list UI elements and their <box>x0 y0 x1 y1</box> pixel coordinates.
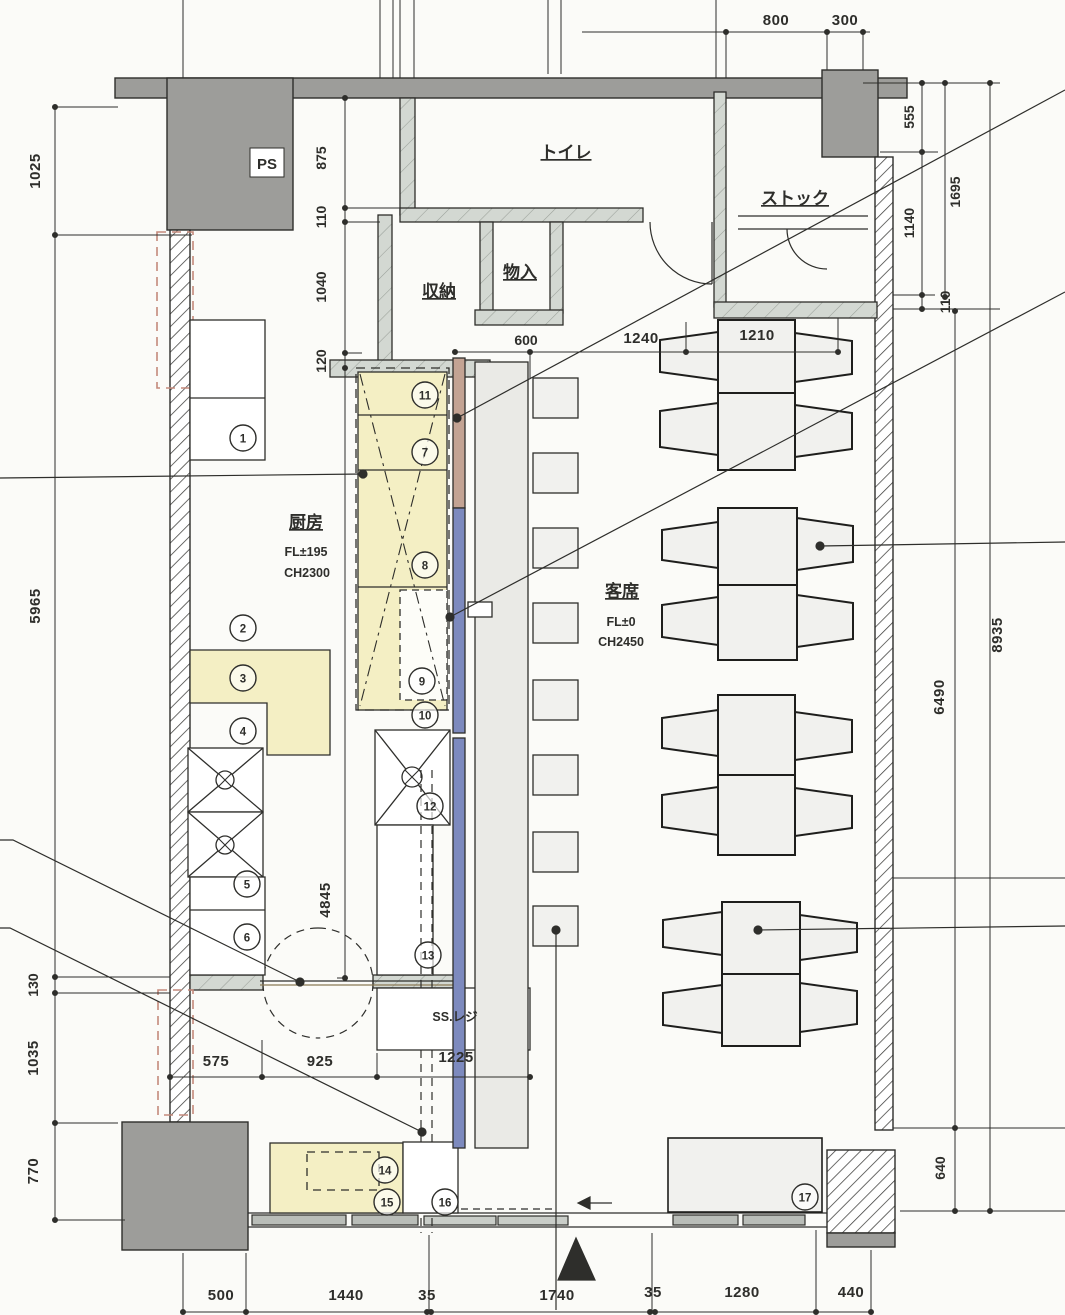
label-closet: 物入 <box>503 262 537 282</box>
stool <box>533 378 578 418</box>
num-9: 9 <box>409 668 435 694</box>
chair <box>797 518 853 570</box>
toilet-left-wall <box>400 98 415 215</box>
label-stock: ストック <box>761 189 829 208</box>
counter-top <box>475 362 528 1148</box>
chair <box>662 597 718 645</box>
dim-925: 925 <box>307 1053 334 1070</box>
num-1: 1 <box>230 425 256 451</box>
num-7: 7 <box>412 439 438 465</box>
svg-text:11: 11 <box>419 391 432 403</box>
chair <box>797 595 853 647</box>
entrance-triangle <box>558 1238 595 1280</box>
stool <box>533 453 578 493</box>
chair <box>795 405 852 457</box>
dim-770: 770 <box>25 1158 42 1185</box>
svg-text:4: 4 <box>240 727 247 739</box>
table <box>718 775 795 855</box>
label-register: SS.レジ <box>432 1010 478 1024</box>
label-seating-ch: CH2450 <box>598 635 644 649</box>
entrance-arrow <box>578 1197 590 1209</box>
bottom-left-block <box>122 1122 248 1250</box>
num-8: 8 <box>412 552 438 578</box>
stock-door-arc <box>787 229 827 269</box>
counter-wall-tan <box>453 358 465 508</box>
counter-wall-blue-1 <box>453 508 465 733</box>
num-14: 14 <box>372 1157 398 1183</box>
svg-text:9: 9 <box>419 677 425 689</box>
right-wall-hatched <box>875 157 893 1130</box>
label-kitchen-fl: FL±195 <box>285 545 328 559</box>
chair <box>663 985 722 1033</box>
kitchen-swing-door <box>263 928 373 1038</box>
num-12: 12 <box>417 793 443 819</box>
label-toilet: トイレ <box>541 143 592 162</box>
svg-text:12: 12 <box>424 802 437 814</box>
dim-1740: 1740 <box>539 1287 574 1304</box>
chair <box>795 712 852 760</box>
chair <box>795 788 852 836</box>
svg-text:6: 6 <box>244 933 250 945</box>
num-5: 5 <box>234 871 260 897</box>
stool <box>533 832 578 872</box>
svg-text:8: 8 <box>422 561 429 573</box>
dim-555: 555 <box>901 105 917 129</box>
dim-575: 575 <box>203 1053 230 1070</box>
stock-left-wall <box>714 92 726 307</box>
dim-800: 800 <box>763 12 790 29</box>
svg-text:1: 1 <box>240 434 247 446</box>
num-13: 13 <box>415 942 441 968</box>
chair <box>662 522 718 568</box>
chair <box>800 983 857 1032</box>
dim-120: 120 <box>313 349 329 373</box>
label-kitchen-ch: CH2300 <box>284 566 330 580</box>
dim-35a: 35 <box>418 1287 436 1304</box>
num-11: 11 <box>412 382 438 408</box>
chair <box>800 915 857 960</box>
num-16: 16 <box>432 1189 458 1215</box>
storage-closet-divider <box>480 222 493 313</box>
left-wall-hatched <box>170 230 190 1122</box>
dim-640: 640 <box>932 1156 948 1180</box>
dim-600: 600 <box>514 332 538 348</box>
dim-500: 500 <box>208 1287 235 1304</box>
svg-text:15: 15 <box>381 1198 394 1210</box>
label-seating: 客席 <box>604 581 639 601</box>
dim-1025: 1025 <box>27 153 44 188</box>
table <box>718 508 797 585</box>
dim-1140: 1140 <box>901 208 917 239</box>
svg-text:2: 2 <box>240 624 246 636</box>
chair <box>662 710 718 756</box>
floor-plan-drawing: 800 300 1025 5965 130 1035 770 875 110 1… <box>0 0 1065 1315</box>
dim-110b: 110 <box>937 290 953 313</box>
dim-110a: 110 <box>313 205 329 228</box>
num-10: 10 <box>412 702 438 728</box>
toilet-door-arc <box>650 222 712 284</box>
stool <box>533 755 578 795</box>
dim-1035: 1035 <box>25 1040 42 1075</box>
stool <box>533 680 578 720</box>
label-ps: PS <box>257 156 277 173</box>
dim-130: 130 <box>25 973 41 997</box>
num-3: 3 <box>230 665 256 691</box>
table <box>722 902 800 974</box>
svg-text:10: 10 <box>419 711 432 723</box>
chair <box>660 332 718 380</box>
counter-stools <box>533 378 578 946</box>
dim-875: 875 <box>313 146 329 170</box>
closet-bottom-wall <box>475 310 563 325</box>
dim-1040: 1040 <box>313 271 329 302</box>
toilet-bottom-wall <box>400 208 643 222</box>
bottom-right-pillar <box>827 1150 895 1233</box>
stool <box>533 528 578 568</box>
num-15: 15 <box>374 1189 400 1215</box>
table <box>718 695 795 775</box>
svg-text:17: 17 <box>799 1193 812 1205</box>
counter-wall-blue-2 <box>453 738 465 1148</box>
dim-8935: 8935 <box>989 617 1006 652</box>
dim-1240: 1240 <box>623 330 658 347</box>
dim-1695: 1695 <box>947 176 963 207</box>
svg-text:16: 16 <box>439 1198 452 1210</box>
label-seating-fl: FL±0 <box>606 615 635 629</box>
table <box>718 393 795 470</box>
dim-1225: 1225 <box>438 1049 473 1066</box>
label-storage: 収納 <box>422 281 456 301</box>
stool <box>533 603 578 643</box>
table <box>722 974 800 1046</box>
num-2: 2 <box>230 615 256 641</box>
chair <box>795 333 852 382</box>
closet-right-wall <box>550 222 563 313</box>
dim-440: 440 <box>838 1284 865 1301</box>
dim-1280: 1280 <box>724 1284 759 1301</box>
dim-4845: 4845 <box>317 882 334 917</box>
dim-1440: 1440 <box>328 1287 363 1304</box>
num-4: 4 <box>230 718 256 744</box>
chair <box>663 912 722 955</box>
stock-bottom-wall <box>714 302 877 318</box>
svg-text:7: 7 <box>422 448 428 460</box>
table <box>718 585 797 660</box>
svg-text:13: 13 <box>422 951 435 963</box>
floor-plan-page: 800 300 1025 5965 130 1035 770 875 110 1… <box>0 0 1065 1315</box>
dim-6490: 6490 <box>931 679 948 714</box>
chair <box>660 403 718 455</box>
label-kitchen: 厨房 <box>289 512 323 532</box>
ps-label: PS <box>250 148 284 177</box>
counter-pass-tab <box>468 602 492 617</box>
chair <box>662 787 718 835</box>
num-6: 6 <box>234 924 260 950</box>
dim-5965: 5965 <box>27 588 44 623</box>
svg-text:5: 5 <box>244 880 251 892</box>
dim-300: 300 <box>832 12 859 29</box>
storage-left-wall <box>378 215 392 365</box>
svg-text:14: 14 <box>379 1166 392 1178</box>
svg-text:3: 3 <box>240 674 246 686</box>
bottom-right-sill <box>827 1233 895 1247</box>
dim-35b: 35 <box>644 1284 662 1301</box>
dim-1210: 1210 <box>739 327 774 344</box>
kitchen-unit-yellow <box>190 650 330 755</box>
num-17: 17 <box>792 1184 818 1210</box>
kitchen-south-sill <box>190 975 263 990</box>
